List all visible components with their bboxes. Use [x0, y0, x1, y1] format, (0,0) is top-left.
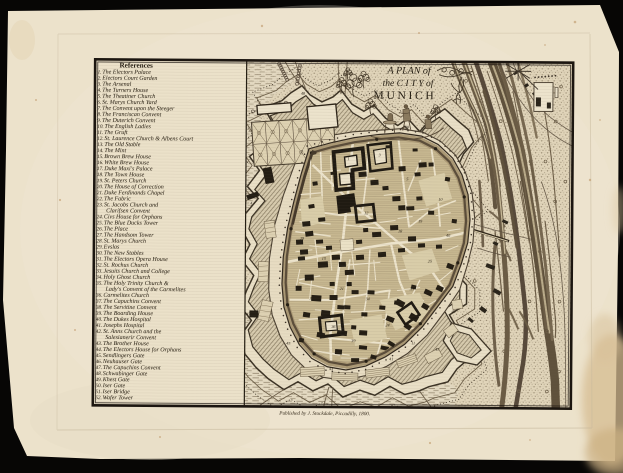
svg-text:Published by J. Stockdale, Pic: Published by J. Stockdale, Piccadilly, 1… — [278, 411, 370, 418]
